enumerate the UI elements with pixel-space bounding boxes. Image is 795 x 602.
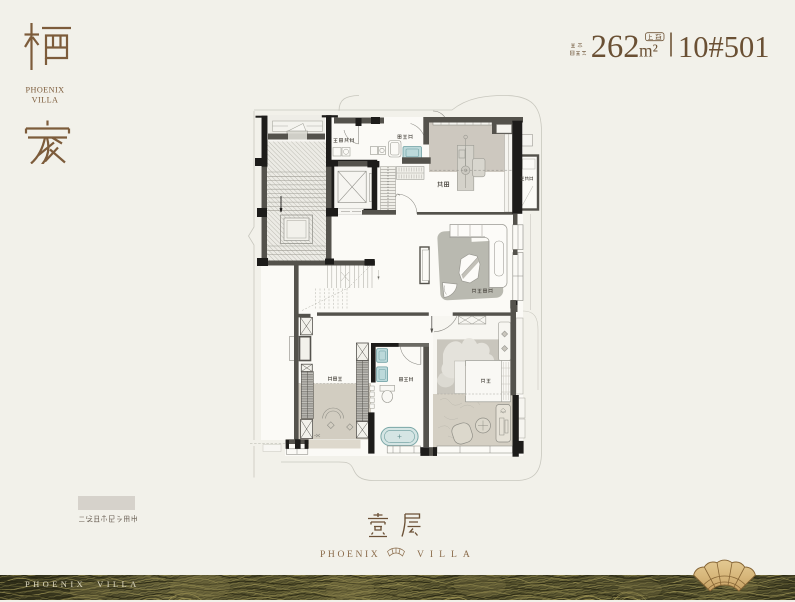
svg-text:m²: m² bbox=[639, 41, 658, 61]
svg-text:10#501: 10#501 bbox=[678, 30, 770, 64]
svg-text:VILLA: VILLA bbox=[32, 96, 59, 105]
svg-text:262: 262 bbox=[591, 29, 640, 65]
svg-text:PHOENIX: PHOENIX bbox=[25, 86, 64, 95]
